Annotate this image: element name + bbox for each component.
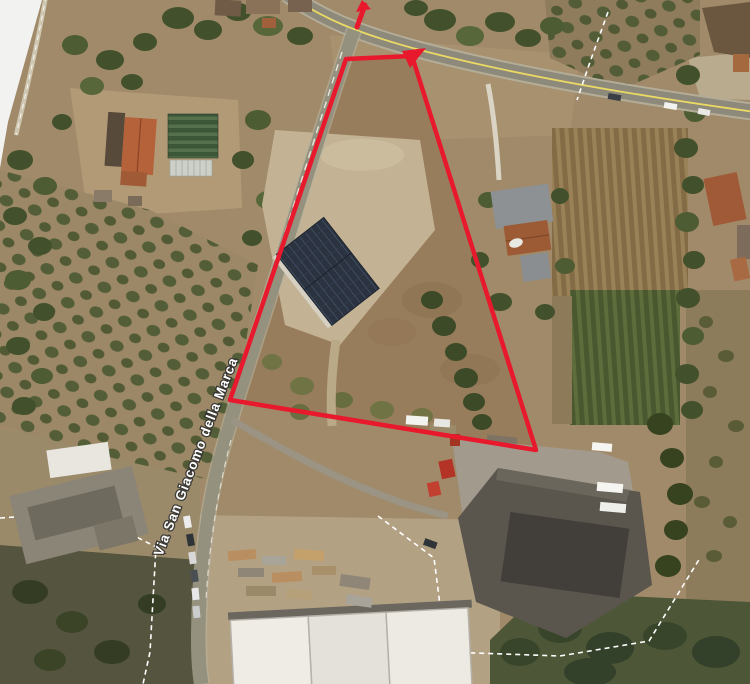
aerial-imagery: Via San Giacomo della Marca xyxy=(0,0,750,684)
greenhouses xyxy=(168,114,218,176)
crop-field xyxy=(570,290,680,425)
white-warehouse xyxy=(228,600,476,684)
satellite-map-canvas[interactable]: Via San Giacomo della Marca xyxy=(0,0,750,684)
